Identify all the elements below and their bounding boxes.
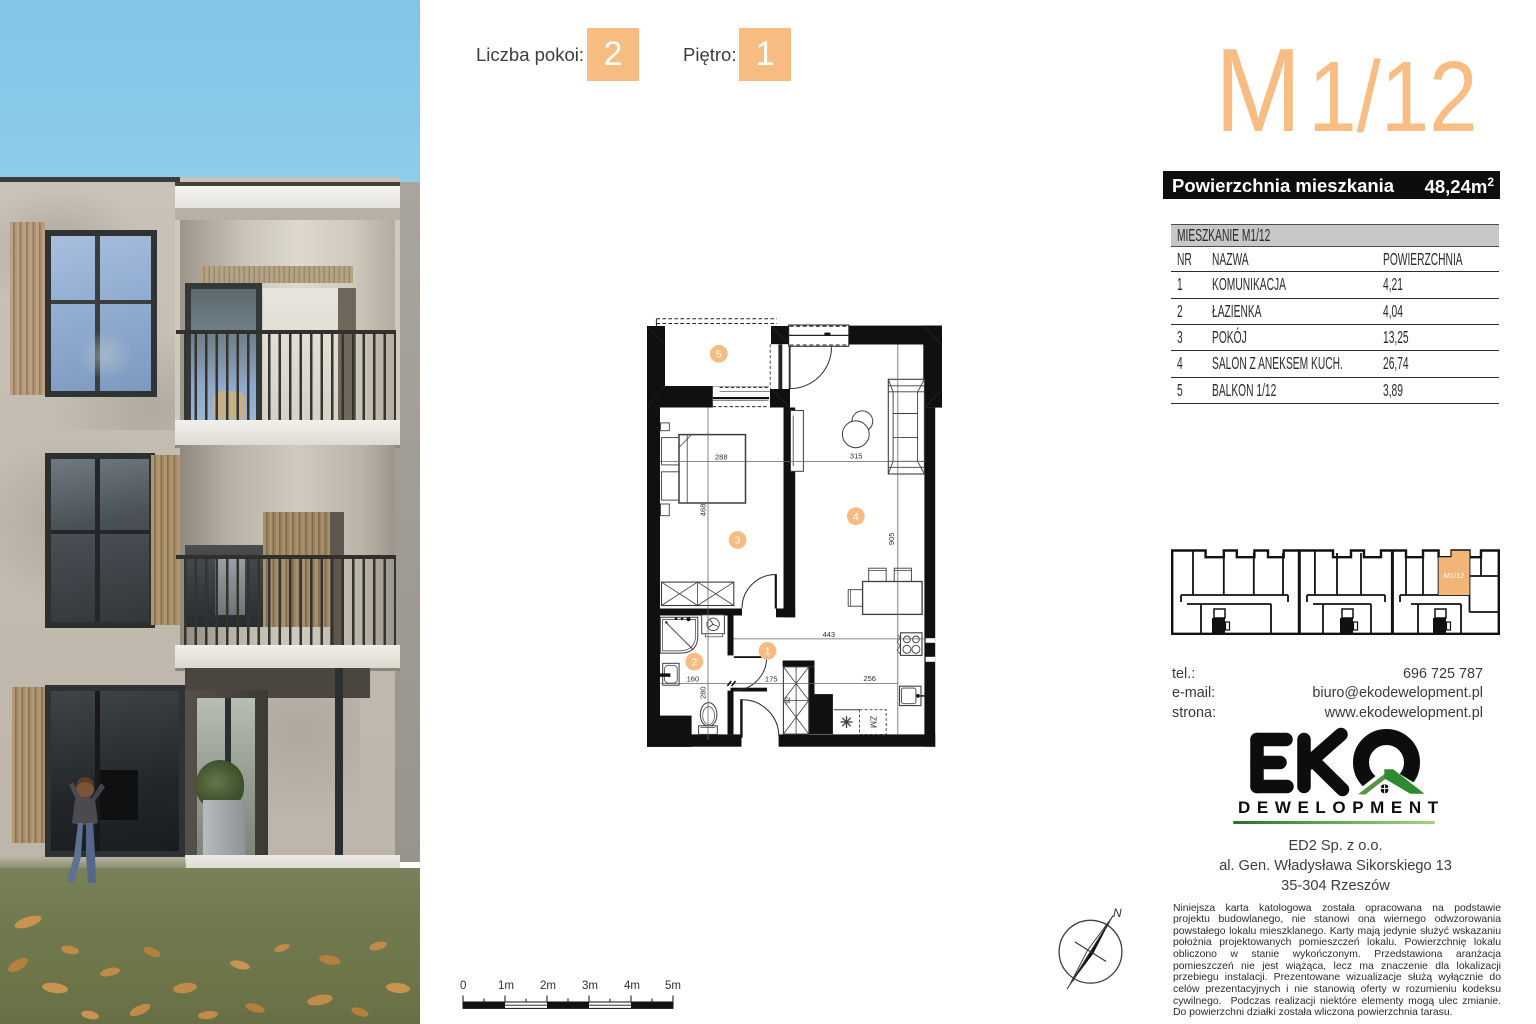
svg-text:2: 2 — [691, 656, 697, 668]
svg-text:4m: 4m — [624, 980, 640, 992]
svg-text:280: 280 — [699, 686, 708, 699]
svg-text:1: 1 — [765, 646, 771, 658]
svg-text:5: 5 — [716, 349, 722, 361]
svg-text:175: 175 — [765, 674, 778, 683]
svg-text:1m: 1m — [498, 980, 514, 992]
svg-text:ZM: ZM — [869, 716, 879, 728]
svg-text:315: 315 — [850, 452, 863, 461]
svg-text:443: 443 — [822, 630, 835, 639]
svg-text:0: 0 — [460, 980, 466, 992]
svg-text:92: 92 — [786, 696, 792, 703]
svg-text:2m: 2m — [540, 980, 556, 992]
svg-text:5m: 5m — [665, 980, 681, 992]
svg-text:3: 3 — [735, 535, 741, 547]
svg-text:288: 288 — [715, 452, 728, 461]
svg-text:M1/12: M1/12 — [1444, 571, 1465, 580]
svg-text:4: 4 — [853, 511, 859, 523]
svg-text:905: 905 — [887, 532, 896, 545]
svg-text:3m: 3m — [582, 980, 598, 992]
svg-text:468: 468 — [698, 504, 707, 517]
svg-text:160: 160 — [687, 674, 700, 683]
svg-text:N: N — [1113, 906, 1122, 920]
svg-text:256: 256 — [863, 674, 876, 683]
